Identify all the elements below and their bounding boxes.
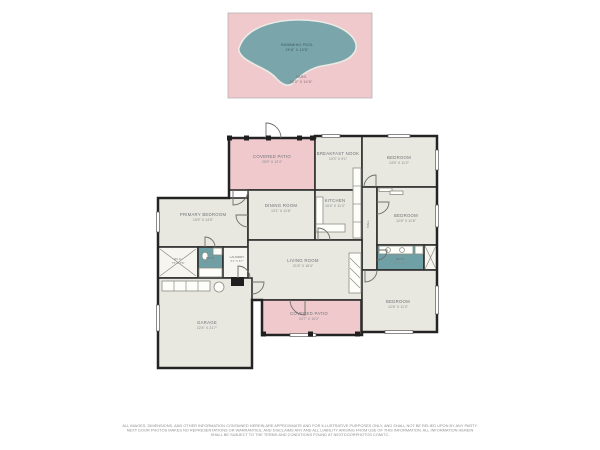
main-floor-plan: COVERED PATIO 25'9" X 12'4" BREAKFAST NO…: [157, 123, 439, 368]
label-patio-top: COVERED PATIO: [253, 154, 291, 159]
label-bedroom-top-right: BEDROOM: [387, 155, 411, 160]
pool-dims: 29'8" X 13'5": [286, 48, 309, 52]
dims-breakfast: 10'3" X 9'1": [329, 157, 348, 161]
floor-plan-page: SWIMMING POOL 29'8" X 13'5" YARD 28'0" X…: [0, 0, 600, 450]
pool-label: SWIMMING POOL: [281, 43, 314, 47]
dims-living: 21'5" X 16'4": [293, 264, 314, 268]
dims-patio-bottom: 24'7" X 10'2": [299, 317, 320, 321]
label-bedroom-mid-right: BEDROOM: [394, 213, 418, 218]
dims-bedroom-top-right: 13'5" X 11'2": [389, 161, 410, 165]
dims-bath-left: 8'0" X 5'6": [203, 260, 216, 264]
dims-wic: 7'5" X 5'8": [171, 261, 184, 265]
label-kitchen: KITCHEN: [325, 198, 346, 203]
dims-laundry: 5'1" X 5'7": [230, 259, 243, 263]
dims-bath-right: 9'8" X 4'11": [393, 261, 408, 265]
label-garage: GARAGE: [197, 320, 217, 325]
dims-bedroom-bottom-right: 12'6" X 11'3": [388, 305, 409, 309]
yard-label: YARD: [296, 75, 307, 79]
label-patio-bottom: COVERED PATIO: [290, 311, 328, 316]
dims-dining: 13'1" X 11'6": [271, 209, 292, 213]
disclaimer-line-3: SHALL BE SUBJECT TO THE TERMS AND CONDIT…: [211, 432, 390, 437]
yard-dims: 28'0" X 14'6": [290, 80, 313, 84]
dims-bedroom-mid-right: 12'8" X 11'6": [396, 219, 417, 223]
fireplace: [349, 253, 361, 293]
dims-patio-top: 25'9" X 12'4": [262, 160, 283, 164]
label-living: LIVING ROOM: [287, 258, 319, 263]
garage-utility-box: [231, 277, 244, 286]
floor-plan-image: SWIMMING POOL 29'8" X 13'5" YARD 28'0" X…: [0, 0, 600, 450]
label-primary-bedroom: PRIMARY BEDROOM: [180, 212, 227, 217]
dims-kitchen: 10'4" X 11'3": [325, 204, 346, 208]
water-heater: [214, 282, 224, 292]
dims-primary-bedroom: 15'9" X 14'0": [193, 218, 214, 222]
room-living: [248, 240, 362, 300]
label-hall: HALL: [366, 220, 370, 228]
label-bedroom-bottom-right: BEDROOM: [386, 299, 410, 304]
label-breakfast: BREAKFAST NOOK: [317, 151, 360, 156]
room-dining: [248, 190, 315, 240]
disclaimer: ALL IMAGES, DIMENSIONS, AND OTHER INFORM…: [122, 423, 477, 437]
dims-garage: 22'4" X 21'7": [197, 326, 218, 330]
label-dining: DINING ROOM: [265, 203, 298, 208]
room-covered-patio-top: [229, 138, 315, 190]
yard-inset: SWIMMING POOL 29'8" X 13'5" YARD 28'0" X…: [228, 13, 372, 98]
